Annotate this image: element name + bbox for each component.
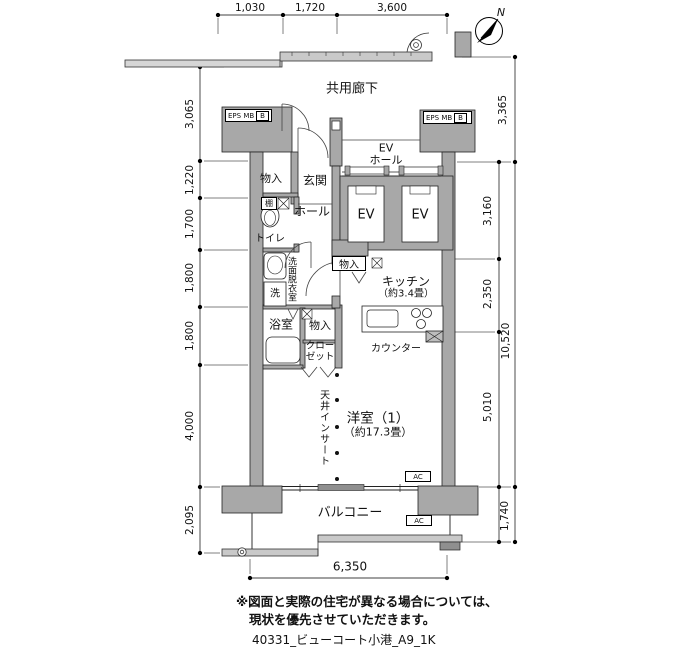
- dim-top-3: 3,600: [377, 3, 407, 15]
- hall-label: ホール: [294, 205, 330, 218]
- ac-upper-label: AC: [413, 473, 423, 481]
- ev-hall-label: EV ホール: [370, 143, 403, 168]
- shelf-box: 棚: [261, 197, 277, 210]
- kitchen-storage-door: [352, 272, 366, 283]
- entrance-storage-label: 物入: [260, 173, 282, 185]
- dim-left-6: 4,000: [185, 411, 197, 441]
- mid-storage-label: 物入: [309, 320, 331, 332]
- dim-left-3: 1,700: [185, 209, 197, 239]
- floor-plan-drawing: [0, 0, 700, 650]
- eps-mb-box-left: EPS MB B: [225, 109, 272, 122]
- kitchen-sink: [367, 310, 398, 327]
- main-room-line1: 洋室（1）: [344, 411, 413, 426]
- dim-left-7: 2,095: [185, 505, 197, 535]
- eps-mb-left-b: B: [256, 111, 269, 121]
- dim-top-1: 1,030: [235, 3, 265, 15]
- drawing-id: 40331_ビューコート小港_A9_1K: [252, 631, 436, 648]
- bathtub: [266, 337, 300, 363]
- kitchen-storage-box: 物入: [332, 256, 366, 271]
- dim-right-5: 5,010: [483, 392, 495, 422]
- eps-mb-left-label: EPS MB: [228, 112, 254, 120]
- disclaimer-line2: 現状を優先させていただきます。: [249, 609, 435, 628]
- dim-right-6: 1,740: [500, 501, 512, 531]
- dim-left-5: 1,800: [185, 321, 197, 351]
- ev-right-label: EV: [411, 209, 428, 224]
- dim-left-2: 1,220: [185, 165, 197, 195]
- dim-left-1: 3,065: [185, 99, 197, 129]
- dim-top-2: 1,720: [295, 3, 325, 15]
- washroom-label: 洗面脱衣室: [286, 257, 296, 302]
- ev-left-label: EV: [357, 209, 374, 224]
- floor-plan-page: 1,030 1,720 3,600 3,065 1,220 1,700 1,80…: [0, 0, 700, 650]
- pillar-right: [418, 486, 478, 515]
- closet-line2: ゼット: [306, 352, 335, 363]
- ceiling-insert-label: 天井インサート: [317, 390, 328, 467]
- bath-label: 浴室: [269, 318, 293, 331]
- pillar-left: [222, 486, 282, 513]
- balcony-railing-left: [222, 549, 318, 556]
- shelf-label: 棚: [265, 198, 273, 209]
- dim-right-2: 3,160: [483, 196, 495, 226]
- kitchen-line1: キッチン: [378, 276, 434, 289]
- corridor-railing: [125, 32, 471, 67]
- closet-doors: [301, 367, 336, 377]
- balcony-railing-right: [318, 535, 462, 542]
- dim-left-4: 1,800: [185, 263, 197, 293]
- corridor-end-wall: [455, 32, 471, 57]
- eps-mb-right-label: EPS MB: [426, 114, 452, 122]
- main-room-label: 洋室（1） （約17.3畳）: [344, 411, 413, 438]
- dim-right-1: 3,365: [498, 95, 510, 125]
- kitchen-label: キッチン （約3.4畳）: [378, 276, 434, 301]
- counter-label: カウンター: [371, 343, 421, 354]
- drain-cap: [238, 548, 246, 556]
- disclaimer-line1: ※図面と実際の住宅が異なる場合については、: [236, 591, 498, 610]
- washer-label: 洗: [270, 288, 280, 299]
- corridor-label: 共用廊下: [326, 83, 378, 98]
- ac-lower-box: AC: [406, 515, 432, 526]
- ac-upper-box: AC: [405, 471, 431, 482]
- corridor-column: [411, 40, 422, 51]
- entrance-door-arc: [298, 128, 328, 158]
- kitchen-storage-label: 物入: [339, 256, 359, 271]
- main-room-line2: （約17.3畳）: [344, 426, 413, 438]
- ev-hall-line2: ホール: [370, 155, 403, 167]
- dim-bottom-1: 6,350: [333, 560, 367, 573]
- ac-lower-label: AC: [414, 517, 424, 525]
- north-arrow-icon: [476, 18, 503, 45]
- entrance-label: 玄関: [303, 174, 327, 187]
- eps-mb-right-b: B: [454, 113, 467, 123]
- closet-label: クロー ゼット: [306, 341, 335, 362]
- toilet-label: トイレ: [255, 233, 285, 244]
- kitchen-line2: （約3.4畳）: [378, 289, 434, 300]
- balcony-label: バルコニー: [318, 507, 383, 522]
- hall-ev-wall: [332, 166, 340, 250]
- compass-north-label: N: [497, 7, 505, 19]
- eps-mb-box-right: EPS MB B: [423, 111, 472, 124]
- dim-right-3: 2,350: [483, 279, 495, 309]
- ceiling-insert-dots: [335, 373, 339, 481]
- window-sliding: [318, 485, 364, 491]
- dim-right-4: 10,520: [501, 323, 513, 360]
